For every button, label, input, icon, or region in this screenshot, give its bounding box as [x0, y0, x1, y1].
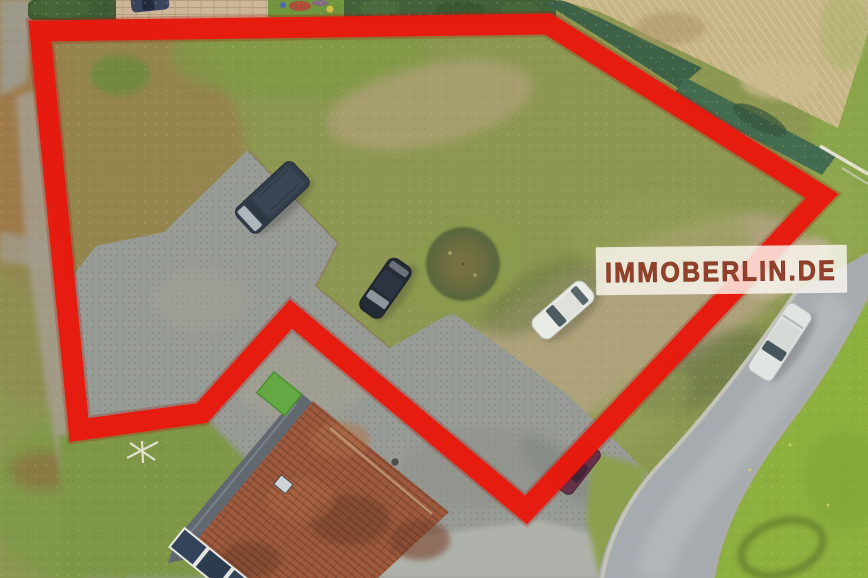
watermark-text: IMMOBERLIN.DE: [605, 255, 837, 288]
photo-canvas: IMMOBERLIN.DE: [0, 0, 868, 578]
drain-cover: [391, 458, 400, 467]
aerial-photo: IMMOBERLIN.DE: [0, 0, 868, 578]
watermark: IMMOBERLIN.DE: [596, 245, 847, 296]
